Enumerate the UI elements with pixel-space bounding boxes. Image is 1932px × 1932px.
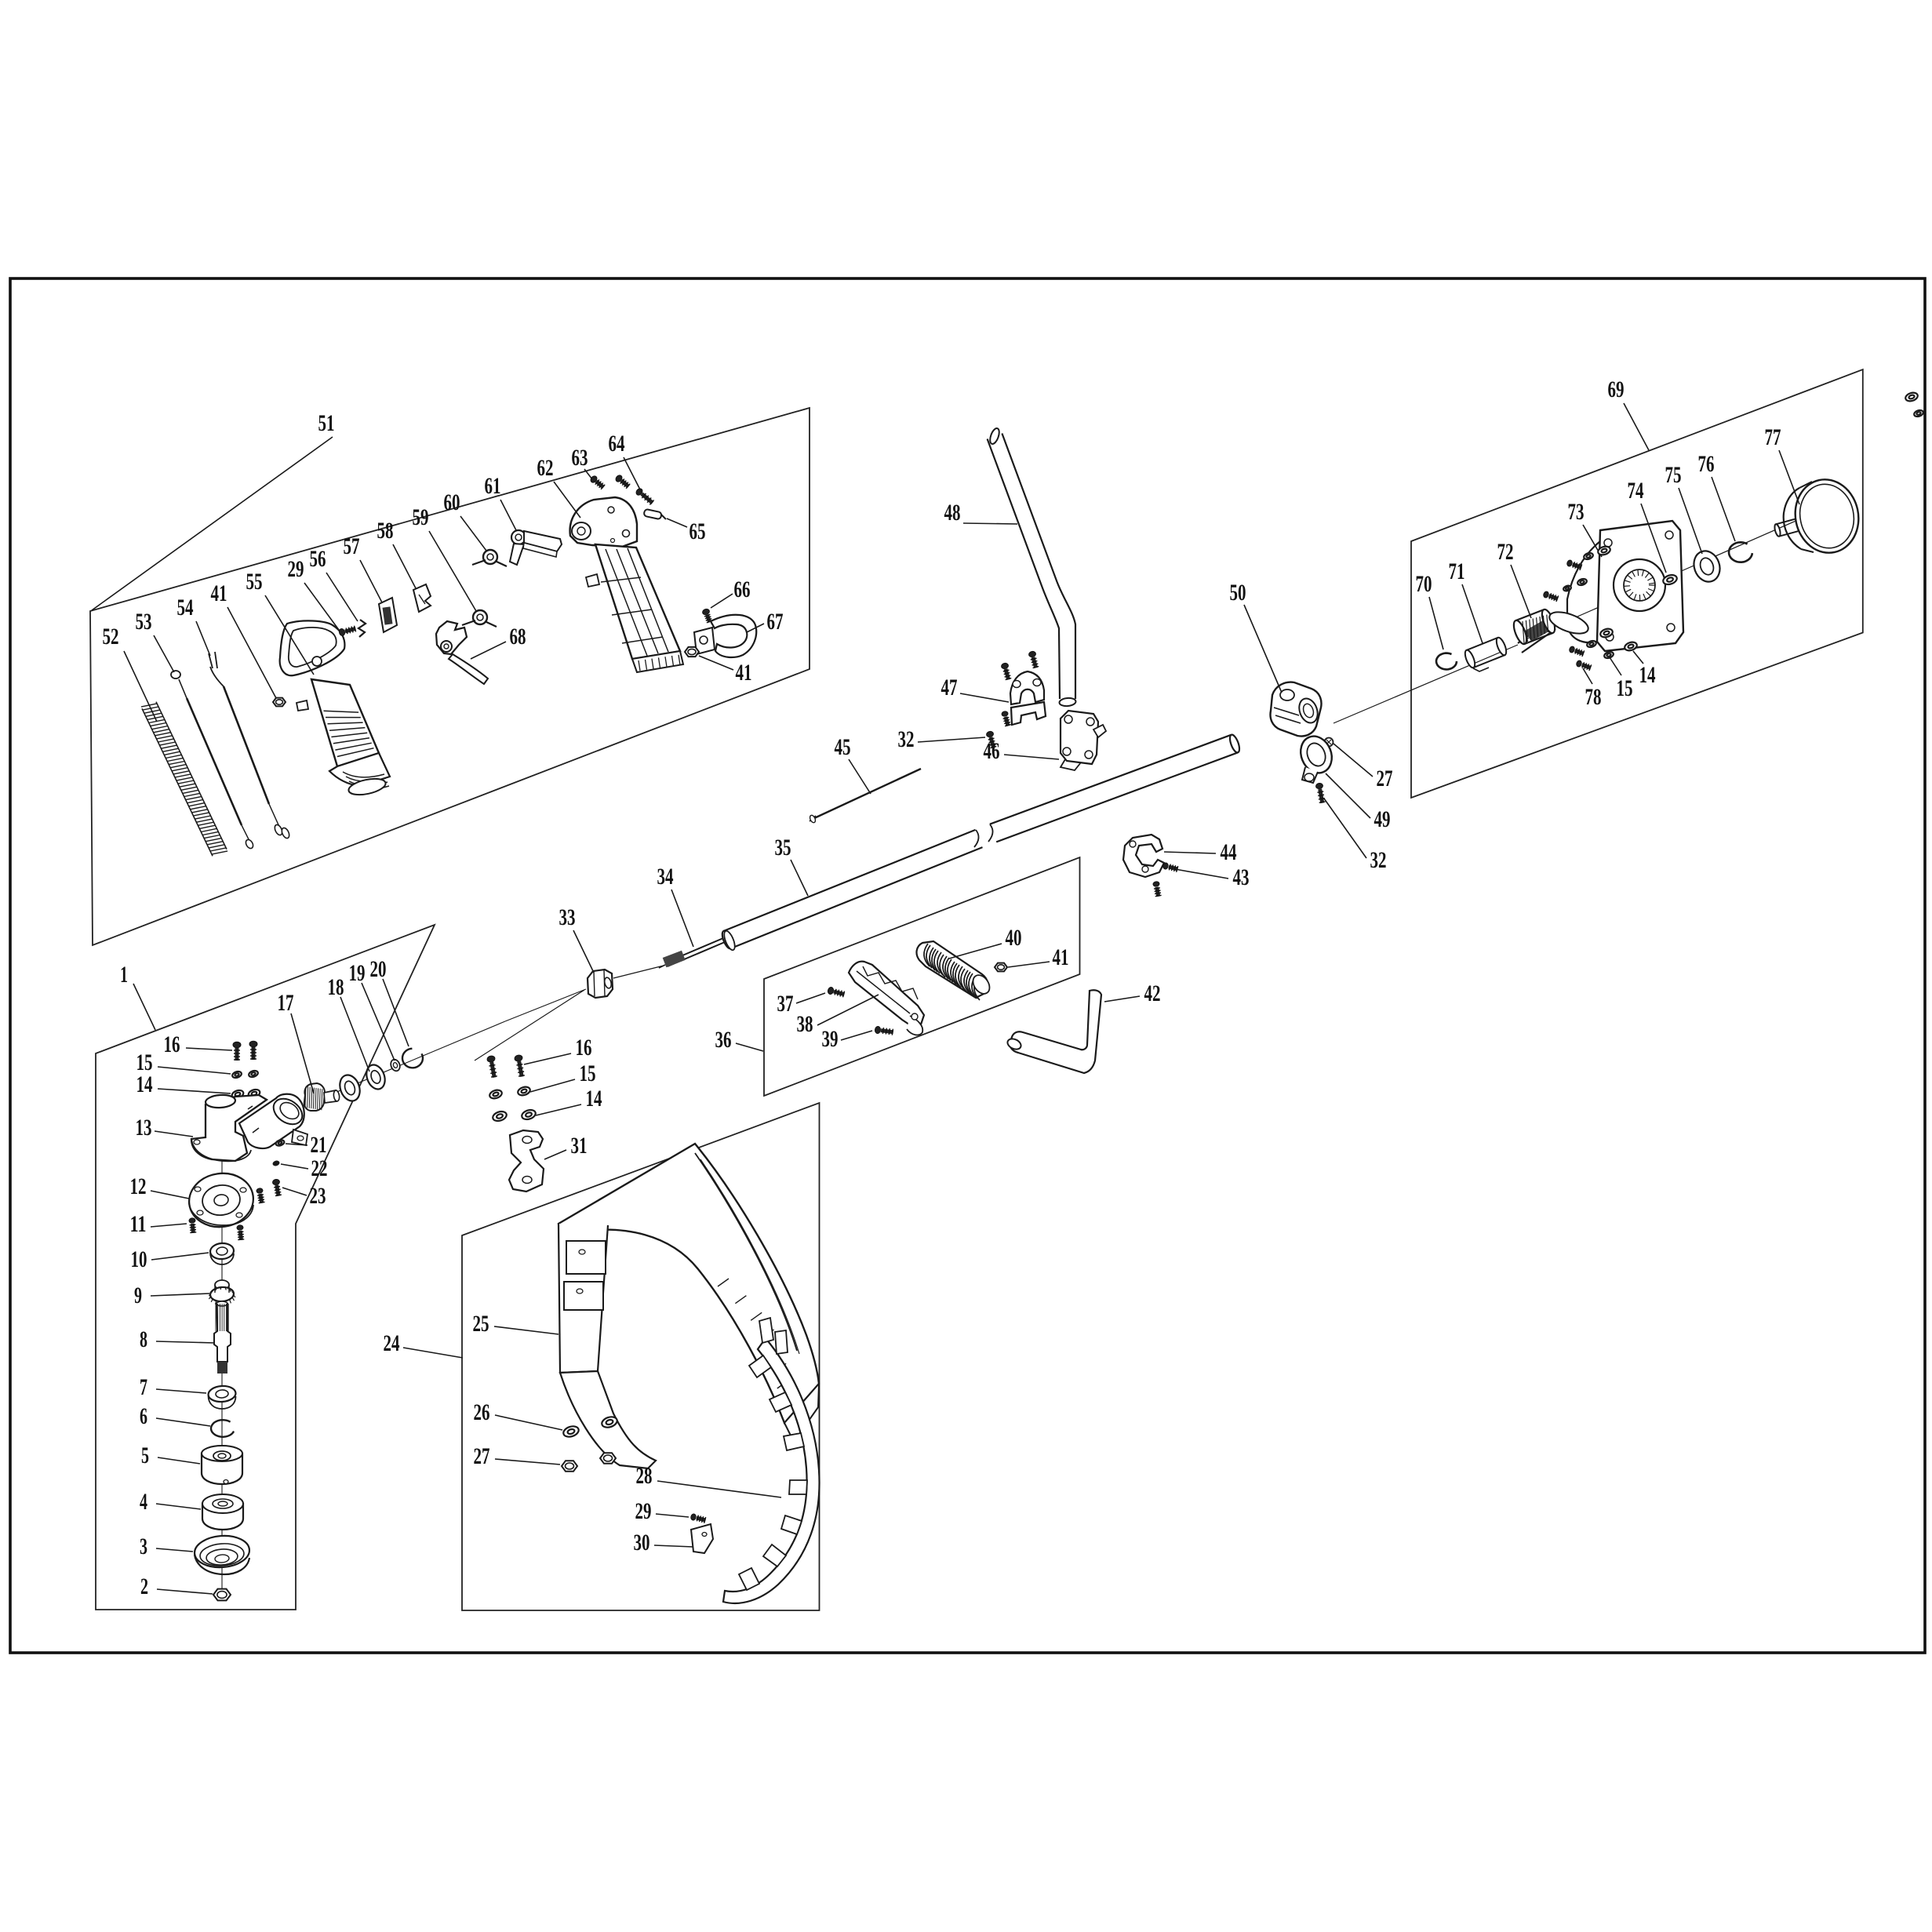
svg-text:42: 42 — [1144, 981, 1161, 1006]
svg-text:16: 16 — [164, 1031, 180, 1057]
svg-text:39: 39 — [822, 1026, 839, 1052]
svg-text:41: 41 — [1053, 944, 1069, 970]
svg-text:15: 15 — [580, 1061, 596, 1086]
svg-text:53: 53 — [136, 609, 152, 635]
svg-text:5: 5 — [141, 1443, 149, 1468]
svg-text:56: 56 — [310, 546, 326, 572]
svg-text:38: 38 — [797, 1011, 813, 1037]
svg-text:61: 61 — [485, 473, 501, 499]
svg-text:14: 14 — [1639, 662, 1656, 688]
svg-text:4: 4 — [140, 1489, 147, 1515]
svg-text:14: 14 — [586, 1086, 602, 1112]
svg-text:6: 6 — [140, 1403, 147, 1429]
svg-text:40: 40 — [1006, 925, 1022, 951]
svg-text:18: 18 — [328, 974, 344, 1000]
svg-text:66: 66 — [734, 577, 751, 602]
svg-text:75: 75 — [1665, 462, 1682, 488]
svg-text:54: 54 — [177, 595, 194, 620]
svg-text:51: 51 — [318, 410, 335, 436]
svg-text:68: 68 — [510, 624, 526, 649]
svg-text:17: 17 — [278, 990, 294, 1016]
svg-text:11: 11 — [130, 1211, 147, 1237]
svg-text:74: 74 — [1628, 478, 1644, 504]
svg-text:26: 26 — [474, 1399, 490, 1425]
svg-text:47: 47 — [941, 675, 958, 700]
svg-text:25: 25 — [473, 1311, 489, 1337]
svg-text:60: 60 — [444, 489, 460, 515]
svg-text:35: 35 — [775, 835, 791, 860]
svg-text:29: 29 — [288, 556, 304, 582]
svg-text:73: 73 — [1568, 499, 1585, 525]
svg-text:59: 59 — [413, 504, 429, 530]
svg-text:58: 58 — [377, 518, 394, 544]
svg-text:57: 57 — [344, 533, 360, 559]
svg-text:62: 62 — [537, 455, 554, 481]
svg-text:64: 64 — [609, 431, 625, 457]
svg-text:30: 30 — [634, 1530, 650, 1555]
svg-text:13: 13 — [136, 1115, 152, 1141]
svg-text:27: 27 — [474, 1443, 490, 1469]
svg-text:19: 19 — [349, 960, 366, 986]
svg-text:65: 65 — [689, 518, 706, 544]
svg-text:41: 41 — [211, 580, 227, 606]
svg-text:34: 34 — [657, 864, 674, 890]
svg-text:27: 27 — [1377, 766, 1393, 791]
svg-text:76: 76 — [1698, 451, 1715, 477]
svg-text:3: 3 — [140, 1534, 147, 1559]
svg-text:22: 22 — [311, 1155, 328, 1181]
svg-text:43: 43 — [1233, 864, 1250, 890]
svg-text:77: 77 — [1765, 424, 1781, 450]
svg-text:32: 32 — [898, 726, 915, 752]
svg-text:9: 9 — [134, 1283, 142, 1308]
svg-text:45: 45 — [835, 734, 851, 760]
svg-text:48: 48 — [944, 500, 961, 526]
svg-text:41: 41 — [736, 660, 752, 686]
svg-text:10: 10 — [131, 1246, 147, 1272]
svg-text:23: 23 — [310, 1183, 326, 1209]
svg-text:14: 14 — [136, 1072, 153, 1097]
svg-text:46: 46 — [984, 738, 1000, 764]
svg-text:33: 33 — [559, 904, 576, 930]
svg-text:1: 1 — [120, 962, 128, 988]
svg-text:16: 16 — [576, 1035, 592, 1061]
svg-text:32: 32 — [1370, 847, 1387, 873]
svg-text:63: 63 — [572, 445, 588, 471]
svg-text:55: 55 — [246, 569, 263, 595]
svg-text:36: 36 — [715, 1027, 732, 1053]
svg-text:12: 12 — [130, 1173, 147, 1199]
svg-text:8: 8 — [140, 1326, 147, 1352]
svg-text:67: 67 — [767, 609, 784, 635]
svg-text:72: 72 — [1497, 539, 1514, 565]
svg-text:24: 24 — [384, 1330, 400, 1356]
svg-text:69: 69 — [1608, 377, 1625, 402]
svg-text:50: 50 — [1230, 580, 1246, 606]
svg-text:29: 29 — [635, 1498, 652, 1524]
svg-text:49: 49 — [1374, 806, 1391, 832]
svg-text:71: 71 — [1449, 558, 1465, 584]
svg-text:44: 44 — [1221, 839, 1237, 865]
svg-text:37: 37 — [777, 991, 794, 1017]
svg-text:28: 28 — [636, 1463, 653, 1489]
svg-text:21: 21 — [311, 1132, 327, 1158]
svg-text:78: 78 — [1585, 684, 1602, 710]
svg-text:31: 31 — [571, 1133, 588, 1159]
svg-text:15: 15 — [1617, 675, 1633, 701]
svg-text:7: 7 — [140, 1374, 147, 1400]
svg-text:70: 70 — [1416, 571, 1432, 597]
svg-text:52: 52 — [103, 624, 119, 649]
svg-text:2: 2 — [140, 1574, 148, 1599]
svg-text:20: 20 — [370, 956, 387, 982]
